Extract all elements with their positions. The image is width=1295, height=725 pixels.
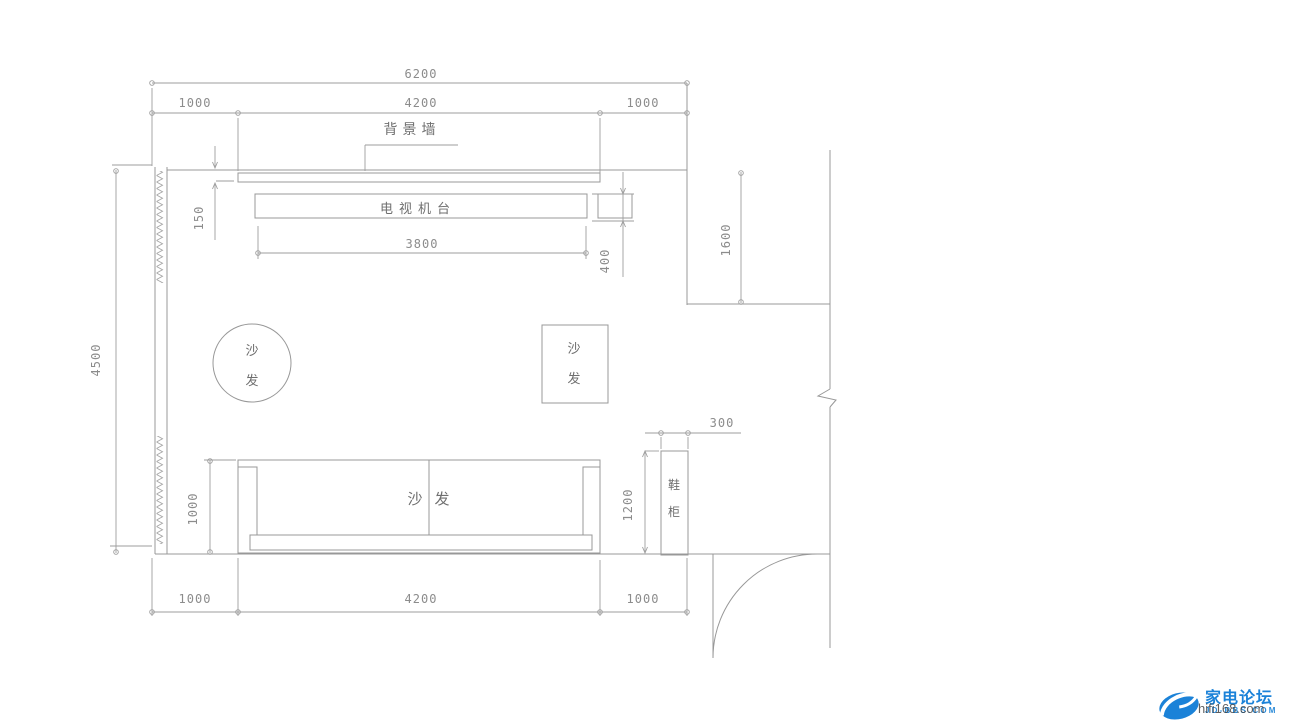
dim-shoe-width: 300 bbox=[710, 416, 735, 430]
forum-logo-swirl-icon bbox=[1158, 689, 1202, 723]
round-sofa: 沙 发 bbox=[213, 324, 291, 402]
door bbox=[713, 554, 817, 658]
background-wall: 背景墙 bbox=[238, 121, 600, 182]
left-wall-hatch-upper bbox=[157, 171, 167, 283]
dimension-300: 300 bbox=[645, 416, 741, 449]
dim-tv-depth: 400 bbox=[598, 249, 612, 274]
dim-top-left: 1000 bbox=[179, 96, 212, 110]
square-sofa: 沙 发 bbox=[542, 325, 608, 403]
square-sofa-label-top: 沙 bbox=[567, 341, 580, 356]
floor-plan-drawing: 6200 1000 4200 1000 背景墙 150 电视机台 bbox=[0, 0, 1295, 725]
dim-top-right: 1000 bbox=[627, 96, 660, 110]
dimension-1200: 1200 bbox=[621, 451, 659, 553]
main-sofa-label-left: 沙 bbox=[407, 491, 422, 508]
dimension-400: 400 bbox=[592, 172, 634, 277]
dimension-3800: 3800 bbox=[256, 226, 589, 259]
square-sofa-label-bottom: 发 bbox=[567, 371, 580, 386]
dim-top-mid: 4200 bbox=[405, 96, 438, 110]
dim-bottom-mid: 4200 bbox=[405, 592, 438, 606]
forum-logo: 家电论坛 JD-BBS.COM hifi168.com bbox=[1158, 688, 1295, 725]
dim-shoe-height: 1200 bbox=[621, 489, 635, 522]
tv-stand-label: 电视机台 bbox=[380, 201, 456, 216]
dim-sofa-depth: 1000 bbox=[186, 493, 200, 526]
dim-tv-width: 3800 bbox=[406, 237, 439, 251]
dim-room-height: 4500 bbox=[89, 344, 103, 377]
dim-alcove: 1600 bbox=[719, 224, 733, 257]
dimension-sofa-1000: 1000 bbox=[186, 459, 236, 555]
dim-top-total: 6200 bbox=[405, 67, 438, 81]
wall-break-symbol bbox=[818, 389, 836, 407]
hifi-watermark: hifi168.com bbox=[1198, 701, 1264, 716]
round-sofa-label-top: 沙 bbox=[245, 343, 258, 358]
main-sofa: 沙 发 bbox=[238, 460, 600, 553]
dimension-150: 150 bbox=[192, 146, 234, 240]
bottom-dimensions: 1000 4200 1000 bbox=[150, 558, 690, 616]
tv-stand: 电视机台 bbox=[255, 194, 632, 218]
dim-bgwall-thickness: 150 bbox=[192, 206, 206, 231]
dim-bottom-right: 1000 bbox=[627, 592, 660, 606]
floor-plan-canvas: 6200 1000 4200 1000 背景墙 150 电视机台 bbox=[0, 0, 1295, 725]
shoe-cabinet: 鞋 柜 bbox=[661, 451, 688, 555]
dim-bottom-left: 1000 bbox=[179, 592, 212, 606]
dimension-4500: 4500 bbox=[89, 165, 152, 554]
left-wall-hatch-lower bbox=[157, 436, 167, 544]
walls bbox=[155, 83, 836, 648]
shoe-cabinet-label-bottom: 柜 bbox=[668, 505, 680, 519]
background-wall-label: 背景墙 bbox=[384, 121, 441, 137]
shoe-cabinet-label-top: 鞋 bbox=[668, 477, 680, 492]
door-swing-arc bbox=[713, 554, 817, 658]
tv-side-unit bbox=[598, 194, 632, 218]
round-sofa-label-bottom: 发 bbox=[245, 373, 258, 388]
dimension-1600: 1600 bbox=[719, 171, 743, 305]
main-sofa-label-right: 发 bbox=[434, 491, 449, 508]
